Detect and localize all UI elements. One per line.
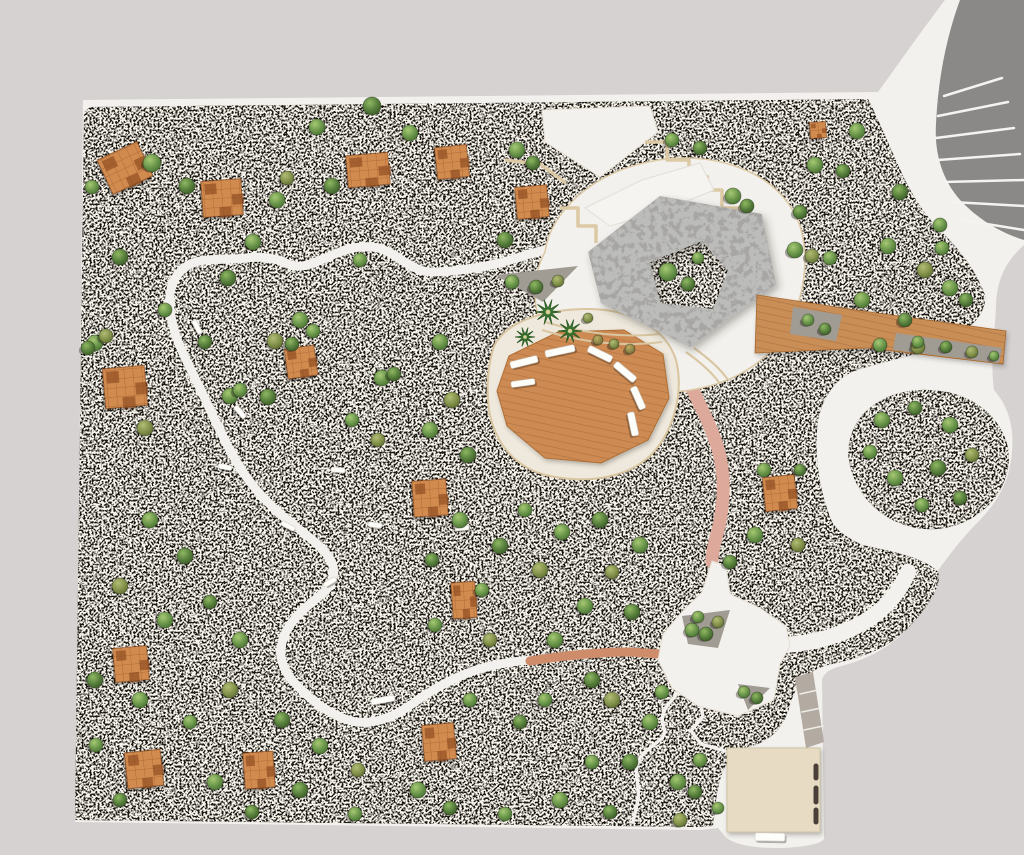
wood-platform: [241, 751, 277, 792]
site-plan-render: [0, 0, 1024, 855]
wood-platform: [807, 121, 827, 141]
south-building: [727, 748, 820, 832]
wood-platform: [449, 581, 479, 622]
wood-platform: [410, 479, 450, 521]
wood-platform: [432, 144, 471, 183]
wood-platform: [122, 749, 165, 792]
south-building: [727, 748, 820, 832]
wood-platform: [344, 152, 393, 191]
wood-platform: [199, 179, 245, 221]
wood-platform: [513, 185, 551, 223]
wood-platform: [760, 474, 799, 514]
site-plan-canvas: [0, 0, 1024, 855]
bench: [755, 833, 787, 844]
wood-platform: [419, 723, 458, 765]
wood-platform: [111, 645, 152, 685]
wood-platform: [100, 365, 149, 412]
